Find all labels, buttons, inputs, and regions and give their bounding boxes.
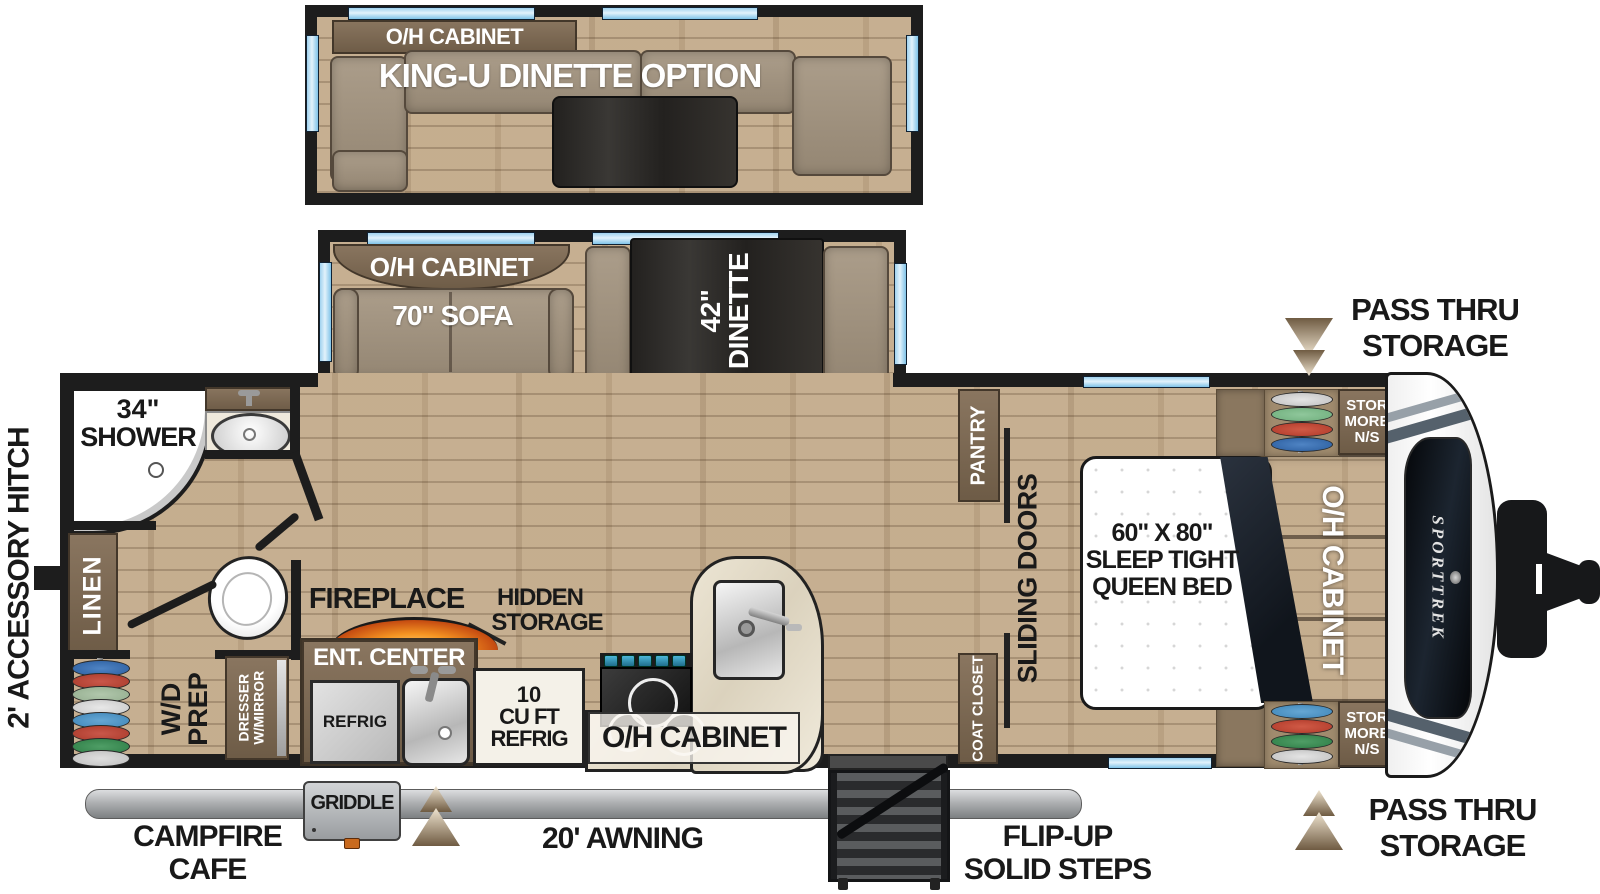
kitchen-faucet-handle <box>786 624 802 631</box>
overhead-cabinet-option: O/H CABINET <box>332 20 577 54</box>
wall-top <box>60 373 318 387</box>
pass-thru-text: PASS THRU <box>1345 792 1560 828</box>
stor-more-text: STOR <box>1345 710 1390 726</box>
wd-prep-text: PREP <box>185 672 212 746</box>
floorplan-diagram: O/H CABINET KING-U DINETTE OPTION O/H CA… <box>0 0 1600 894</box>
coat-closet-text: COAT CLOSET <box>970 655 987 761</box>
cap-logo-badge <box>1450 571 1461 584</box>
refrig-text: CU FT <box>490 706 567 728</box>
stove-knob <box>638 655 652 667</box>
bedroom-oh-cabinet-text: O/H CABINET <box>1315 485 1349 675</box>
hanger-clothes <box>1271 392 1333 407</box>
hidden-storage-label: HIDDEN STORAGE <box>470 585 610 635</box>
wall-bathroom <box>205 450 300 459</box>
dinette-table <box>552 96 738 188</box>
king-u-dinette-title: KING-U DINETTE OPTION <box>330 56 810 96</box>
hitch-coupler <box>1578 560 1600 604</box>
griddle-text: GRIDDLE <box>311 792 394 814</box>
stor-more-text: STOR <box>1345 398 1390 414</box>
sofa-label: 70" SOFA <box>355 300 550 332</box>
dresser-text: W/MIRROR <box>251 671 266 745</box>
awning-label: 20' AWNING <box>515 822 730 856</box>
ent-refrigerator: REFRIG <box>310 680 400 764</box>
griddle-dot <box>312 828 316 832</box>
awning-text: 20' AWNING <box>542 822 703 855</box>
nightstand <box>1216 701 1266 767</box>
window <box>319 262 332 362</box>
window <box>348 7 535 20</box>
wall-linen-bottom <box>60 650 130 659</box>
hanger-clothes <box>1271 704 1333 719</box>
dinette-size-text: 42" <box>697 253 725 369</box>
overhead-cabinet-label: O/H CABINET <box>370 252 534 283</box>
shower-text: SHOWER <box>72 424 204 452</box>
wall-shower-bottom <box>60 521 156 530</box>
campfire-cafe-label: CAMPFIRE CAFE <box>105 820 310 886</box>
hidden-storage-text: HIDDEN <box>470 585 610 610</box>
stor-more-text: N/S <box>1345 430 1390 446</box>
fireplace-text: FIREPLACE <box>309 583 464 615</box>
brand-logo-text: SPORTTREK <box>1428 515 1448 640</box>
window <box>602 7 758 20</box>
bed-label: 60" X 80" SLEEP TIGHT QUEEN BED <box>1082 520 1242 601</box>
hanger-clothes <box>72 750 130 767</box>
linen-label: LINEN <box>68 533 118 657</box>
stor-more-text: N/S <box>1345 742 1390 758</box>
flip-up-steps-text: SOLID STEPS <box>950 853 1165 886</box>
hidden-storage-text: STORAGE <box>484 610 610 635</box>
hanger-clothes <box>1271 749 1333 764</box>
hanger-clothes <box>1271 734 1333 749</box>
bed-text: SLEEP TIGHT <box>1082 547 1242 574</box>
hanger-clothes <box>1271 719 1333 734</box>
dinette-text: DINETTE <box>725 253 753 369</box>
hanger-clothes <box>1271 407 1333 422</box>
window <box>906 35 919 132</box>
kitchen-oh-cabinet-label: O/H CABINET <box>588 712 800 764</box>
accessory-hitch-label: 2' ACCESSORY HITCH <box>0 405 46 750</box>
campfire-cafe-text: CAMPFIRE <box>105 820 310 853</box>
dresser-label: DRESSER W/MIRROR <box>222 656 280 760</box>
sliding-doors-label: SLIDING DOORS <box>998 428 1058 728</box>
campfire-cafe-text: CAFE <box>105 853 310 886</box>
window <box>1083 376 1210 388</box>
dinette-label: 42" DINETTE <box>640 240 810 382</box>
front-cap: SPORTTREK <box>1385 372 1499 778</box>
dresser-text: DRESSER <box>236 671 251 745</box>
sofa-label-text: 70" SOFA <box>392 300 512 331</box>
bedroom-oh-cabinet-label: O/H CABINET <box>1300 465 1364 695</box>
refrigerator-10cuft: 10 CU FT REFRIG <box>473 668 585 766</box>
hanger-clothes <box>1271 437 1333 452</box>
shower-size-text: 34" <box>72 396 204 424</box>
prep-sink <box>402 678 470 766</box>
entry-door-threshold <box>828 754 948 770</box>
prep-sink-handle <box>438 666 456 674</box>
bed-text: QUEEN BED <box>1082 574 1242 601</box>
flip-up-steps-label: FLIP-UP SOLID STEPS <box>950 820 1165 886</box>
shower-label: 34" SHOWER <box>72 396 204 451</box>
prep-sink-handle <box>410 666 428 674</box>
faucet-icon <box>246 390 252 406</box>
dinette-bench <box>585 246 631 384</box>
refrig-text: REFRIG <box>490 728 567 750</box>
wall-bathroom <box>290 387 300 457</box>
dinette-bench <box>823 246 889 384</box>
griddle-label: GRIDDLE <box>303 792 401 815</box>
kitchen-sink-drain <box>738 620 755 637</box>
linen-text: LINEN <box>79 555 108 635</box>
stove-knob <box>604 655 618 667</box>
pantry-text: PANTRY <box>968 406 991 486</box>
hanger-clothes <box>1271 422 1333 437</box>
hitch-notch <box>1536 564 1542 594</box>
sofa-armrest <box>548 288 574 380</box>
king-u-dinette-title-text: KING-U DINETTE OPTION <box>379 57 761 95</box>
refrig-text: 10 <box>490 684 567 706</box>
griddle-knob <box>344 838 360 849</box>
fireplace-label: FIREPLACE <box>294 583 479 616</box>
window <box>1108 757 1212 769</box>
pass-thru-text: STORAGE <box>1335 328 1535 364</box>
pass-thru-storage-label-bottom: PASS THRU STORAGE <box>1345 792 1560 863</box>
window <box>894 263 907 365</box>
nightstand <box>1216 389 1266 457</box>
pass-thru-text: PASS THRU <box>1335 292 1535 328</box>
sink-drain <box>243 428 256 441</box>
pass-thru-text: STORAGE <box>1345 828 1560 864</box>
kitchen-oh-cabinet-text: O/H CABINET <box>602 721 786 755</box>
stove-knob <box>672 655 686 667</box>
shower-drain <box>148 462 164 478</box>
pass-thru-storage-label-top: PASS THRU STORAGE <box>1335 292 1535 363</box>
prep-sink-drain <box>438 726 452 740</box>
ent-refrig-text: REFRIG <box>323 712 387 732</box>
steps-foot <box>838 878 848 890</box>
flip-up-steps-text: FLIP-UP <box>950 820 1165 853</box>
overhead-cabinet-label: O/H CABINET <box>386 24 524 50</box>
wd-prep-label: W/D PREP <box>145 658 225 760</box>
windshield: SPORTTREK <box>1404 437 1472 719</box>
sliding-doors-text: SLIDING DOORS <box>1013 473 1044 683</box>
wd-prep-text: W/D <box>158 672 185 746</box>
accessory-hitch-text: 2' ACCESSORY HITCH <box>3 427 37 728</box>
window <box>306 35 319 132</box>
dinette-bench <box>332 150 408 192</box>
stove-knob <box>655 655 669 667</box>
pantry-label: PANTRY <box>958 389 1000 502</box>
bed-text: 60" X 80" <box>1082 520 1242 547</box>
pass-thru-arrow-up-icon <box>1295 812 1343 850</box>
coat-closet-label: COAT CLOSET <box>958 653 998 764</box>
stor-more-text: MORE <box>1345 726 1390 742</box>
stove-knob <box>621 655 635 667</box>
steps-foot <box>930 878 940 890</box>
stor-more-text: MORE <box>1345 414 1390 430</box>
